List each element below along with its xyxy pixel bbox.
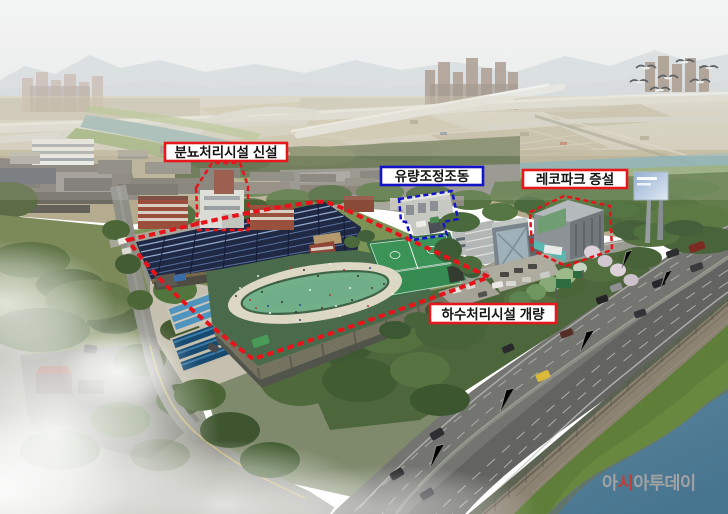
svg-text:유량조정조동: 유량조정조동 bbox=[395, 168, 470, 184]
svg-text:아시아투데이: 아시아투데이 bbox=[602, 473, 696, 493]
svg-text:레코파크 증설: 레코파크 증설 bbox=[536, 172, 614, 187]
svg-text:분뇨처리시설 신설: 분뇨처리시설 신설 bbox=[174, 145, 277, 160]
svg-text:하수처리시설 개량: 하수처리시설 개량 bbox=[441, 306, 545, 322]
